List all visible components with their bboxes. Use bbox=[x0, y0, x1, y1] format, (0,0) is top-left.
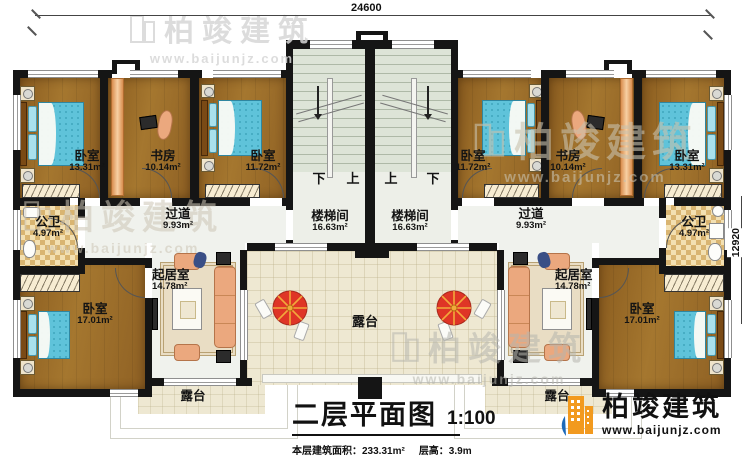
window bbox=[213, 70, 281, 78]
nightstand bbox=[20, 296, 35, 311]
room-label-bedroom-tr: 卧室 13.31m² bbox=[669, 149, 704, 174]
wall-bump bbox=[355, 243, 389, 258]
floor-plan-canvas: 24600 12920 bbox=[0, 0, 750, 461]
stair-label-down: 下 bbox=[426, 168, 439, 187]
room-label-study-l: 书房 10.14m² bbox=[145, 149, 180, 174]
room-label-stair-l: 楼梯间 16.63m² bbox=[311, 209, 349, 234]
wall bbox=[592, 258, 599, 268]
wall bbox=[604, 198, 644, 206]
wall bbox=[145, 258, 152, 268]
plan-scale: 1:100 bbox=[447, 408, 496, 430]
wall bbox=[724, 250, 731, 300]
wall-bump bbox=[627, 62, 632, 74]
bed-mattress bbox=[218, 100, 262, 156]
nightstand bbox=[20, 86, 35, 101]
wall bbox=[451, 40, 458, 210]
sofa bbox=[508, 266, 530, 348]
dimension-tick bbox=[705, 9, 715, 19]
wall bbox=[674, 198, 731, 206]
wall bbox=[497, 360, 504, 386]
wall bbox=[365, 40, 375, 243]
plan-title: 二层平面图 bbox=[292, 393, 437, 432]
top-dimension-label: 24600 bbox=[348, 2, 385, 14]
nightstand bbox=[709, 360, 724, 375]
wardrobe bbox=[205, 184, 260, 198]
wall bbox=[659, 266, 731, 274]
stair-arrow-head bbox=[424, 114, 432, 120]
desk-monitor bbox=[586, 115, 605, 130]
room-label-hall-r: 过道 9.93m² bbox=[516, 207, 546, 232]
window bbox=[130, 70, 178, 78]
right-dimension-line bbox=[741, 196, 742, 324]
washbasin bbox=[709, 223, 724, 239]
tv-cabinet bbox=[152, 298, 158, 330]
wall bbox=[13, 358, 20, 397]
wall bbox=[145, 298, 152, 397]
toilet bbox=[708, 243, 722, 261]
logo-url: www.baijunjz.com bbox=[602, 423, 722, 437]
bed-pillow bbox=[707, 336, 716, 356]
room-label-bedroom-br: 卧室 17.01m² bbox=[624, 302, 659, 327]
wall bbox=[592, 258, 659, 265]
wardrobe bbox=[484, 184, 539, 198]
wall bbox=[724, 70, 731, 95]
wall bbox=[100, 198, 140, 206]
window bbox=[13, 210, 21, 250]
title-underline bbox=[292, 434, 460, 436]
wall bbox=[247, 243, 275, 251]
room-label-terrace-bl: 露台 bbox=[180, 389, 205, 403]
nightstand bbox=[20, 168, 35, 183]
wall bbox=[172, 198, 250, 206]
room-label-terrace-center: 露台 bbox=[352, 315, 378, 330]
window bbox=[417, 243, 469, 251]
wall bbox=[240, 360, 247, 386]
desk-monitor bbox=[139, 115, 158, 130]
hall-l-floor bbox=[85, 243, 145, 258]
wall bbox=[724, 358, 731, 397]
wall bbox=[286, 40, 293, 210]
wall bbox=[78, 248, 85, 274]
patio-umbrella-icon bbox=[434, 288, 474, 328]
armchair bbox=[174, 344, 200, 361]
coffee-table bbox=[172, 288, 202, 330]
room-label-stair-r: 楼梯间 16.63m² bbox=[391, 209, 429, 234]
bed-pillow bbox=[209, 129, 217, 153]
bed-pillow bbox=[209, 103, 217, 127]
wall bbox=[13, 389, 110, 397]
bed-pillow bbox=[707, 134, 716, 160]
room-label-bedroom-tr2: 卧室 11.72m² bbox=[456, 149, 491, 174]
sink bbox=[712, 205, 724, 217]
room-label-bath-l: 公卫 4.97m² bbox=[33, 215, 63, 240]
bed-pillow bbox=[28, 134, 37, 160]
toilet bbox=[23, 240, 36, 258]
sofa bbox=[214, 266, 236, 348]
nightstand bbox=[20, 360, 35, 375]
wall bbox=[13, 266, 85, 274]
balcony-door-threshold bbox=[508, 378, 580, 386]
nightstand bbox=[709, 296, 724, 311]
window bbox=[275, 243, 327, 251]
wall bbox=[634, 70, 642, 198]
stair-direction-arrow bbox=[317, 86, 319, 114]
hall-r-floor bbox=[599, 243, 659, 258]
wardrobe bbox=[664, 274, 724, 292]
wall bbox=[100, 70, 108, 198]
wall-bump bbox=[383, 33, 388, 43]
right-dimension-label: 12920 bbox=[727, 228, 745, 257]
side-table bbox=[513, 252, 528, 265]
balcony-door-threshold bbox=[164, 378, 236, 386]
balcony-door bbox=[240, 290, 248, 360]
stair-arrow-head bbox=[314, 114, 322, 120]
window bbox=[724, 95, 732, 150]
corner-tick bbox=[27, 26, 37, 36]
floor-area-label: 本层建筑面积：233.31m² bbox=[292, 442, 405, 457]
wall bbox=[190, 70, 199, 198]
bed-pillow bbox=[527, 129, 535, 153]
title-block: 二层平面图 1:100 本层建筑面积：233.31m² 层高：3.9m bbox=[292, 393, 496, 457]
room-label-bedroom-tl: 卧室 13.31m² bbox=[69, 149, 104, 174]
room-label-bedroom-tl2: 卧室 11.72m² bbox=[246, 149, 281, 174]
balcony-door bbox=[497, 290, 505, 360]
window bbox=[566, 70, 614, 78]
bed-headboard bbox=[20, 102, 27, 166]
wall bbox=[13, 198, 70, 206]
stair-label-up: 上 bbox=[346, 168, 359, 187]
wall bbox=[78, 198, 85, 218]
side-table bbox=[216, 350, 231, 363]
wall bbox=[497, 250, 504, 290]
logo-name: 柏竣建筑 bbox=[602, 394, 722, 421]
wall bbox=[494, 198, 572, 206]
watermark-building-icon bbox=[128, 11, 158, 45]
side-table bbox=[216, 252, 231, 265]
bed-pillow bbox=[28, 314, 37, 334]
wall bbox=[659, 198, 666, 218]
wall bbox=[469, 243, 497, 251]
wall bbox=[13, 150, 20, 210]
bed-pillow bbox=[707, 106, 716, 132]
wall bbox=[13, 70, 20, 95]
window bbox=[392, 40, 434, 49]
wall-bump bbox=[112, 62, 117, 74]
bed-mattress bbox=[674, 311, 706, 359]
window bbox=[13, 300, 21, 358]
bed-headboard bbox=[717, 102, 724, 166]
stair-railing bbox=[327, 78, 333, 178]
dimension-tick bbox=[31, 9, 41, 19]
stair-direction-arrow bbox=[427, 86, 429, 114]
nightstand bbox=[201, 158, 215, 172]
wall bbox=[327, 243, 355, 251]
bookshelf bbox=[620, 78, 633, 196]
bed-headboard bbox=[201, 100, 208, 156]
room-label-hall-l: 过道 9.93m² bbox=[163, 207, 193, 232]
stair-label-up: 上 bbox=[384, 168, 397, 187]
bed-headboard bbox=[20, 311, 27, 359]
bed-mattress bbox=[482, 100, 526, 156]
wardrobe bbox=[20, 274, 80, 292]
hall-r-floor bbox=[458, 206, 659, 243]
wall bbox=[659, 248, 666, 274]
bed-pillow bbox=[28, 106, 37, 132]
logo-building-icon bbox=[556, 392, 596, 438]
side-table bbox=[513, 350, 528, 363]
floor-height-label: 层高：3.9m bbox=[419, 442, 472, 457]
bed-mattress bbox=[38, 311, 70, 359]
window bbox=[646, 70, 716, 78]
wall bbox=[240, 250, 247, 290]
wall bbox=[13, 250, 20, 300]
nightstand bbox=[709, 86, 724, 101]
patio-umbrella-icon bbox=[270, 288, 310, 328]
corner-tick bbox=[703, 30, 713, 40]
top-dimension-line bbox=[35, 15, 711, 16]
nightstand bbox=[709, 168, 724, 183]
bed-headboard bbox=[717, 311, 724, 359]
bed-pillow bbox=[28, 336, 37, 356]
room-label-bedroom-bl: 卧室 17.01m² bbox=[77, 302, 112, 327]
wall bbox=[724, 150, 731, 210]
room-label-living-l: 起居室 14.78m² bbox=[152, 268, 190, 293]
wall bbox=[592, 298, 599, 397]
wall bbox=[85, 258, 152, 265]
company-logo: 柏竣建筑 www.baijunjz.com bbox=[556, 392, 722, 438]
bed-pillow bbox=[527, 103, 535, 127]
stair-label-down: 下 bbox=[312, 168, 325, 187]
wall bbox=[541, 70, 549, 198]
window bbox=[310, 40, 352, 49]
window bbox=[724, 300, 732, 358]
window bbox=[13, 95, 21, 150]
window bbox=[110, 389, 138, 397]
stair-railing bbox=[411, 78, 417, 178]
bed-pillow bbox=[707, 314, 716, 334]
nightstand bbox=[201, 84, 215, 98]
room-label-living-r: 起居室 14.78m² bbox=[555, 268, 593, 293]
bookshelf bbox=[111, 78, 124, 196]
window bbox=[463, 70, 531, 78]
room-label-bath-r: 公卫 4.97m² bbox=[679, 215, 709, 240]
window bbox=[28, 70, 98, 78]
armchair bbox=[544, 344, 570, 361]
coffee-table bbox=[542, 288, 572, 330]
room-label-study-r: 书房 10.14m² bbox=[550, 149, 585, 174]
wall-bump bbox=[356, 33, 361, 43]
wall bbox=[389, 243, 417, 251]
